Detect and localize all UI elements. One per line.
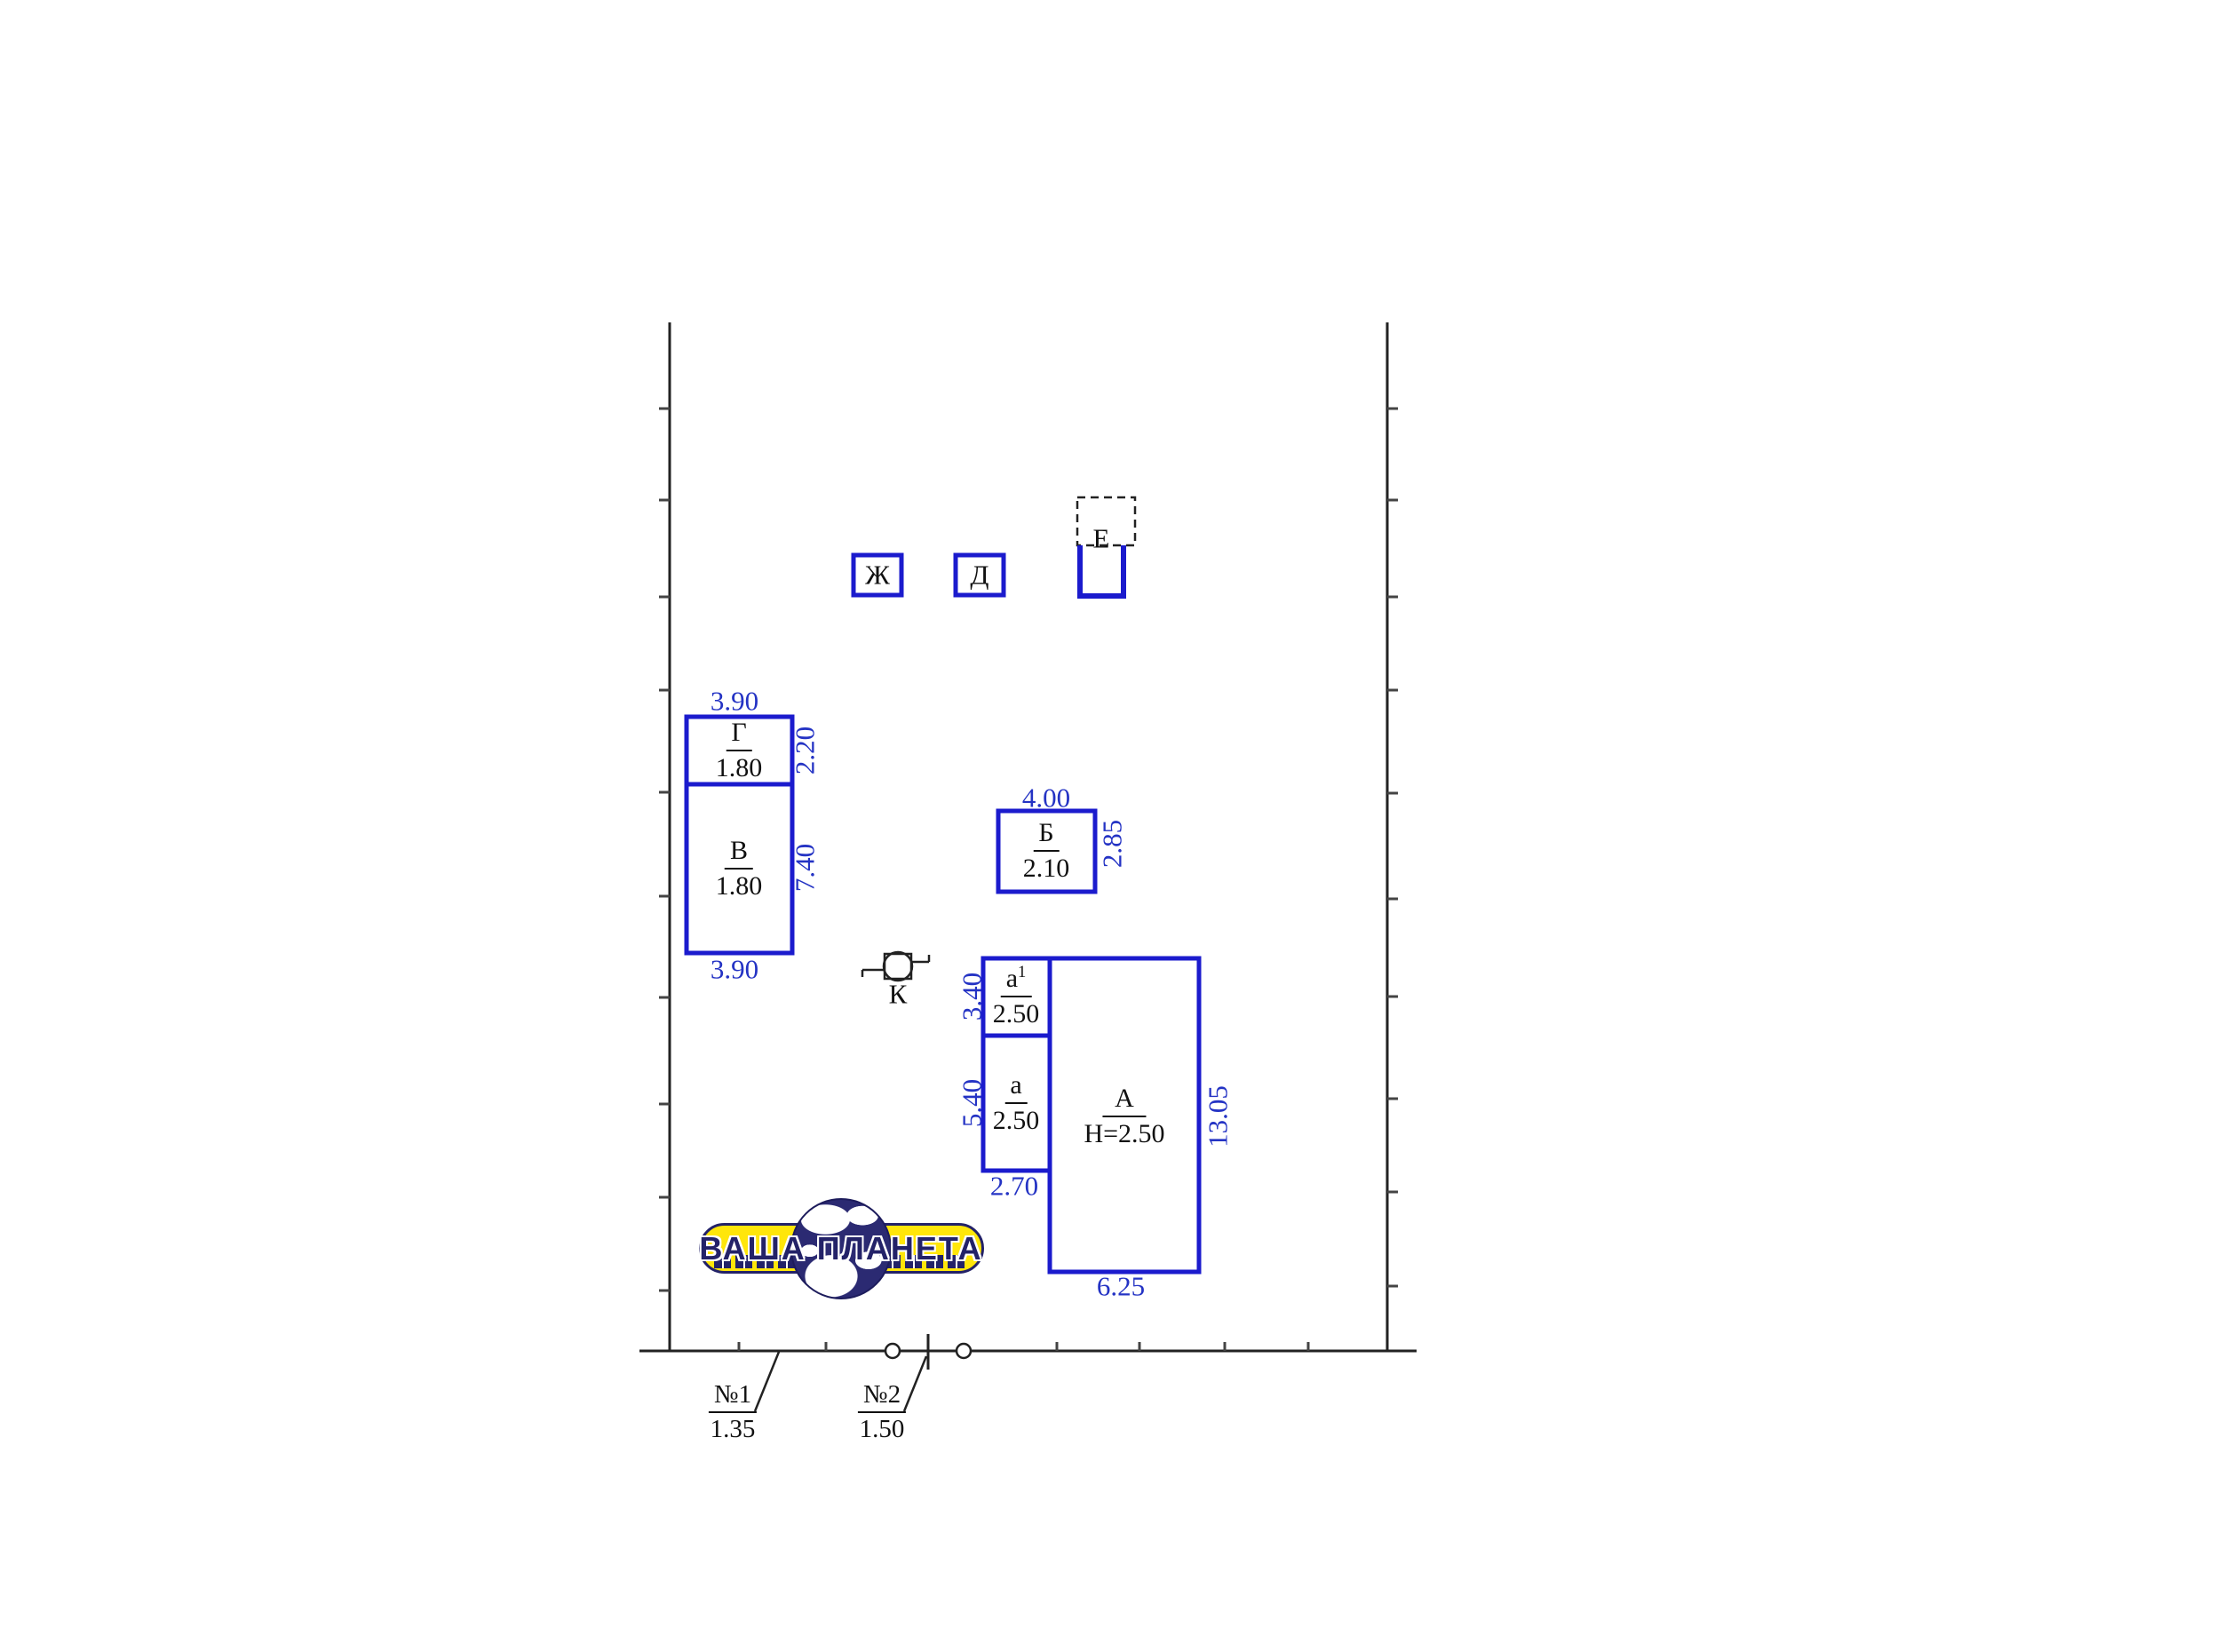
building-zh-label: Ж bbox=[865, 561, 890, 589]
dim-a1-left: 3.40 bbox=[958, 973, 986, 1021]
building-a1-designation: а1 2.50 bbox=[993, 965, 1040, 1028]
dim-A-bottom: 6.25 bbox=[1097, 1273, 1145, 1300]
dim-v-bottom: 3.90 bbox=[711, 956, 758, 983]
dim-a-bottom: 2.70 bbox=[990, 1172, 1038, 1200]
mark2-leader-line bbox=[904, 1356, 926, 1411]
boundary-right-ticks bbox=[1387, 409, 1398, 1286]
building-a1-letter: а1 bbox=[1001, 965, 1032, 997]
baseline-node-circle-1 bbox=[885, 1344, 900, 1358]
building-e-label: Е bbox=[1093, 525, 1110, 552]
building-b-height: 2.10 bbox=[1023, 852, 1070, 882]
building-a-letter: а bbox=[1004, 1072, 1027, 1104]
logo-text: ВАША ПЛАНЕТА bbox=[699, 1230, 982, 1267]
building-g-designation: Г 1.80 bbox=[716, 719, 763, 782]
dim-b-top: 4.00 bbox=[1022, 784, 1070, 812]
dim-b-right: 2.85 bbox=[1099, 820, 1126, 868]
mark2-label: №2 bbox=[858, 1382, 906, 1413]
building-d-label: Д bbox=[970, 561, 988, 589]
dim-g-top: 3.90 bbox=[711, 687, 758, 715]
building-v-height: 1.80 bbox=[716, 870, 763, 900]
building-b-designation: Б 2.10 bbox=[1023, 820, 1070, 882]
baseline-node-circle-2 bbox=[957, 1344, 971, 1358]
site-plan-canvas: Ж Д Е К Г 1.80 В 1.80 Б 2.10 а1 2.50 а 2… bbox=[0, 0, 2231, 1652]
mark1-leader-line bbox=[755, 1352, 779, 1411]
mark1-designation: №1 1.35 bbox=[709, 1382, 757, 1442]
mark2-designation: №2 1.50 bbox=[858, 1382, 906, 1442]
building-v-designation: В 1.80 bbox=[716, 838, 763, 900]
building-v-letter: В bbox=[725, 838, 753, 870]
well-label: К bbox=[889, 981, 908, 1008]
mark1-value: 1.35 bbox=[711, 1413, 756, 1442]
building-g-height: 1.80 bbox=[716, 751, 763, 782]
mark1-label: №1 bbox=[709, 1382, 757, 1413]
mark2-value: 1.50 bbox=[860, 1413, 905, 1442]
building-a-height: 2.50 bbox=[993, 1104, 1040, 1134]
dim-v-right: 7.40 bbox=[791, 844, 819, 892]
dim-A-right: 13.05 bbox=[1204, 1085, 1232, 1148]
building-g-letter: Г bbox=[726, 719, 751, 751]
building-A-designation: А Н=2.50 bbox=[1084, 1085, 1164, 1148]
building-a1-height: 2.50 bbox=[993, 997, 1040, 1028]
building-A-height: Н=2.50 bbox=[1084, 1117, 1164, 1148]
well-symbol bbox=[862, 952, 929, 981]
building-a-designation: а 2.50 bbox=[993, 1072, 1040, 1134]
dim-a-left: 5.40 bbox=[958, 1079, 986, 1127]
dim-g-right: 2.20 bbox=[791, 727, 819, 774]
building-a1-superscript: 1 bbox=[1018, 963, 1026, 981]
building-A-letter: А bbox=[1102, 1085, 1147, 1117]
boundary-left-ticks bbox=[659, 409, 670, 1291]
building-b-letter: Б bbox=[1033, 820, 1059, 852]
